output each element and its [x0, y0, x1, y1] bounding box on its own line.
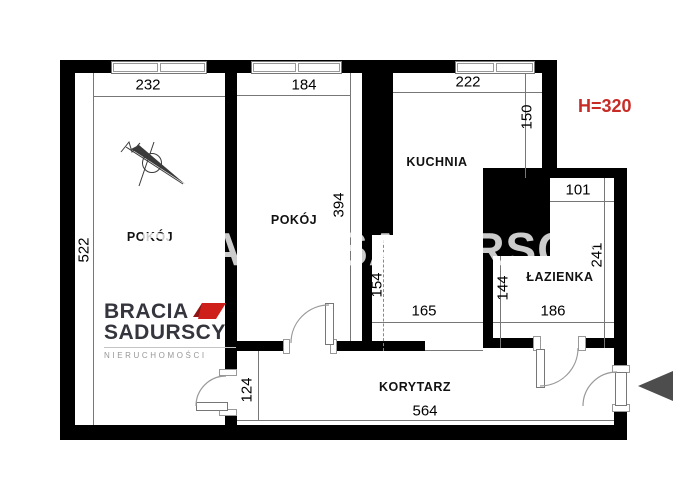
- door-leaf-entrance: [615, 372, 627, 406]
- dim-line-184: [237, 95, 350, 96]
- door-leaf-bathroom: [536, 349, 545, 388]
- window-pane: [457, 63, 494, 72]
- dim-line-564: [237, 420, 614, 421]
- wall-corridor-mid: [337, 341, 425, 351]
- window-pane: [253, 63, 296, 72]
- window-pane: [160, 63, 205, 72]
- wall-bathroom-bottom-right: [585, 338, 627, 348]
- wall-kitchen-right: [542, 60, 557, 178]
- dim-label-394: 394: [332, 192, 347, 217]
- logo-brand-top: BRACIA: [104, 301, 189, 322]
- dim-line-186: [493, 322, 614, 323]
- floor-plan: 232 184 222 522 394 150 154 165 101 241 …: [0, 0, 688, 500]
- window-pane: [496, 63, 533, 72]
- ceiling-height-label: H=320: [578, 96, 632, 117]
- wall-bathroom-bottom-left: [483, 338, 533, 348]
- logo-ribbon-icon: [192, 301, 226, 321]
- dim-line-222: [393, 92, 542, 93]
- ceiling-light-icon: [121, 142, 185, 186]
- wall-right-upper: [614, 168, 627, 366]
- dim-label-222: 222: [455, 75, 480, 90]
- dim-label-522: 522: [77, 237, 92, 262]
- watermark-text: BRACIA SADURSCY: [140, 222, 603, 276]
- window-pane: [298, 63, 341, 72]
- door-arc-entrance: [583, 372, 617, 406]
- door-arc-room2: [291, 305, 329, 343]
- window-kitchen: [455, 61, 535, 74]
- door-leaf-room1: [196, 402, 228, 411]
- dim-label-184: 184: [291, 78, 316, 93]
- window-room2: [251, 61, 342, 74]
- room-label-corridor: KORYTARZ: [379, 380, 451, 394]
- door-jamb: [283, 339, 290, 354]
- logo-tagline: NIERUCHOMOŚCI: [104, 347, 236, 360]
- door-arc-bathroom: [540, 348, 578, 386]
- dim-label-101: 101: [565, 183, 590, 198]
- wall-bottom: [60, 425, 627, 440]
- door-leaf-room2: [325, 303, 334, 345]
- dim-line-522: [93, 73, 94, 425]
- window-pane: [113, 63, 158, 72]
- wall-room2-kitchen-thick: [362, 73, 393, 235]
- dim-label-154: 154: [370, 272, 385, 297]
- dim-line-165: [372, 322, 483, 323]
- dim-label-144: 144: [496, 275, 511, 300]
- dim-label-150: 150: [520, 104, 535, 129]
- dim-label-232: 232: [135, 78, 160, 93]
- dim-label-186: 186: [540, 304, 565, 319]
- dim-line-394: [350, 73, 351, 341]
- entrance-arrow-icon: [638, 371, 673, 401]
- dim-line-124: [258, 351, 259, 421]
- kitchen-opening-line: [425, 350, 483, 351]
- dim-label-165: 165: [411, 304, 436, 319]
- door-jamb: [219, 369, 237, 376]
- agency-logo: BRACIA SADURSCY NIERUCHOMOŚCI: [104, 301, 236, 360]
- dim-line-232: [93, 96, 225, 97]
- wall-left: [60, 60, 75, 440]
- door-jamb: [578, 336, 586, 351]
- logo-brand-bottom: SADURSCY: [104, 322, 236, 343]
- wall-right-lower: [614, 412, 627, 425]
- wall-corridor-left: [237, 341, 283, 351]
- room-label-kitchen: KUCHNIA: [406, 155, 467, 169]
- dim-label-124: 124: [240, 377, 255, 402]
- window-room1: [111, 61, 207, 74]
- dim-label-564: 564: [412, 404, 437, 419]
